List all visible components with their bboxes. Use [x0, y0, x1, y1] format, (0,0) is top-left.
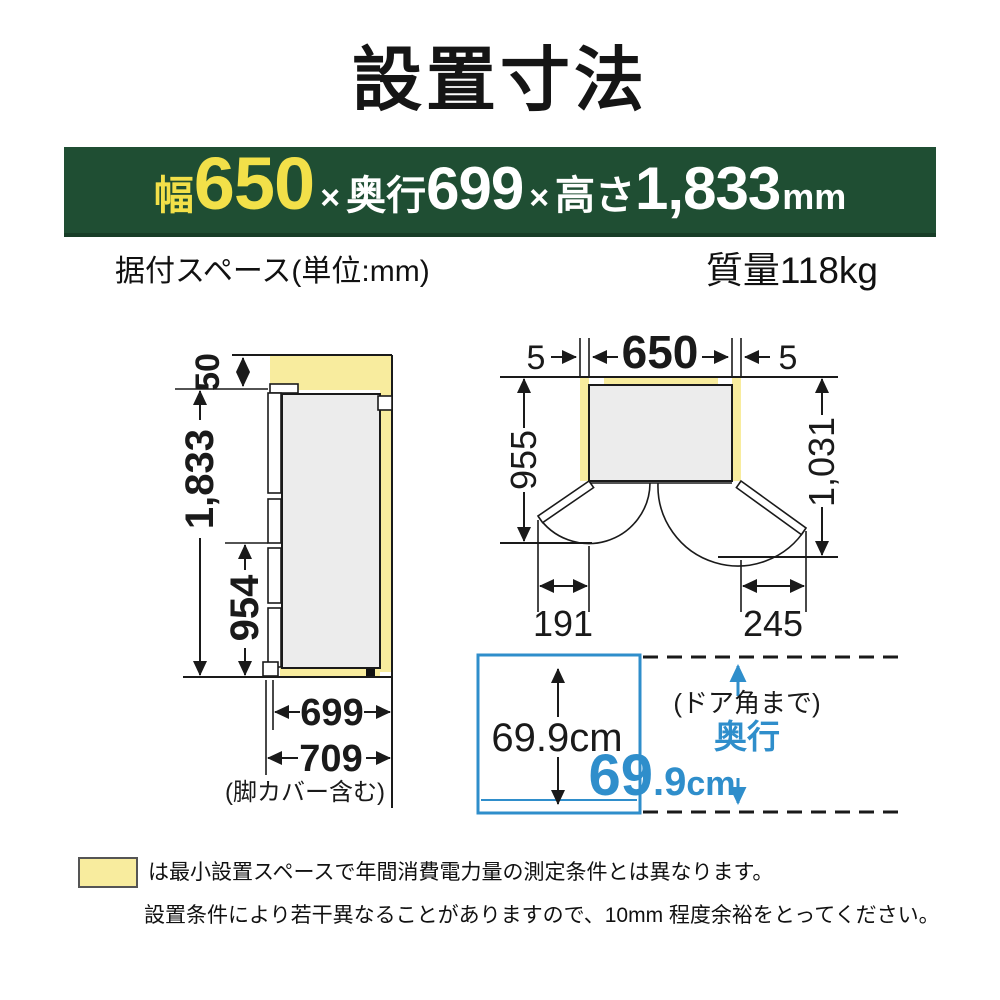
dim-left-gap: 5 [527, 339, 546, 377]
dim-width: 650 [622, 326, 699, 378]
right-door-open [736, 481, 806, 535]
leg-cover-note: (脚カバー含む) [225, 779, 385, 806]
depth-label-blue: 奥行 [714, 718, 780, 755]
dim-depth: 699 [300, 692, 363, 734]
fridge-body-side [282, 394, 380, 668]
left-gap-area [580, 378, 589, 481]
right-door-swing-arc [658, 483, 806, 566]
rear-foot-mark [366, 669, 375, 676]
dim-depth-to-door: 1,031 [801, 417, 842, 507]
door-panel-1 [268, 393, 281, 493]
door-top-step [270, 384, 298, 393]
left-door-open [538, 481, 594, 523]
dim-right-door-swing: 245 [743, 603, 803, 644]
depth-value-unit: cm [686, 765, 735, 803]
dim-depth-with-cover: 709 [299, 738, 362, 780]
body-top-notch [378, 396, 392, 410]
dim-total-height: 1,833 [178, 429, 222, 529]
depth-value-decimal: .9 [653, 760, 686, 804]
legend: は最小設置スペースで年間消費電力量の測定条件とは異なります。 設置条件により若干… [78, 856, 958, 929]
depth-value-main: 69 [588, 743, 653, 808]
top-view-diagram: 5 650 5 955 1,031 1 [500, 326, 842, 644]
dim-depth-to-front: 955 [503, 430, 544, 490]
bottom-clearance-area [280, 668, 380, 677]
dim-lower-height: 954 [223, 574, 267, 641]
door-panel-2 [268, 499, 281, 543]
door-panel-3 [268, 548, 281, 603]
fridge-body-top [589, 385, 732, 481]
front-leg [263, 662, 278, 676]
depth-box-diagram: 69.9cm (ドア角まで) 奥行 69.9cm [478, 655, 898, 813]
dim-left-door-swing: 191 [533, 603, 593, 644]
door-corner-note: (ドア角まで) [673, 688, 820, 718]
dim-right-gap: 5 [779, 339, 798, 377]
installation-diagram: 50 1,833 954 699 709 (脚カバー含む) [0, 0, 1000, 1000]
side-view-diagram: 50 1,833 954 699 709 (脚カバー含む) [175, 353, 392, 808]
dim-top-clearance: 50 [189, 353, 227, 391]
legend-line1: は最小設置スペースで年間消費電力量の測定条件とは異なります。 [148, 856, 773, 886]
legend-line2: 設置条件により若干異なることがありますので、10mm 程度余裕をとってください。 [144, 899, 958, 929]
right-gap-area [732, 378, 741, 481]
rear-clearance-area [380, 390, 392, 672]
page: 設置寸法 幅 650 × 奥行 699 × 高さ 1,833 mm 据付スペース… [0, 0, 1000, 1000]
door-panel-4 [268, 608, 281, 667]
min-space-swatch [78, 857, 138, 888]
